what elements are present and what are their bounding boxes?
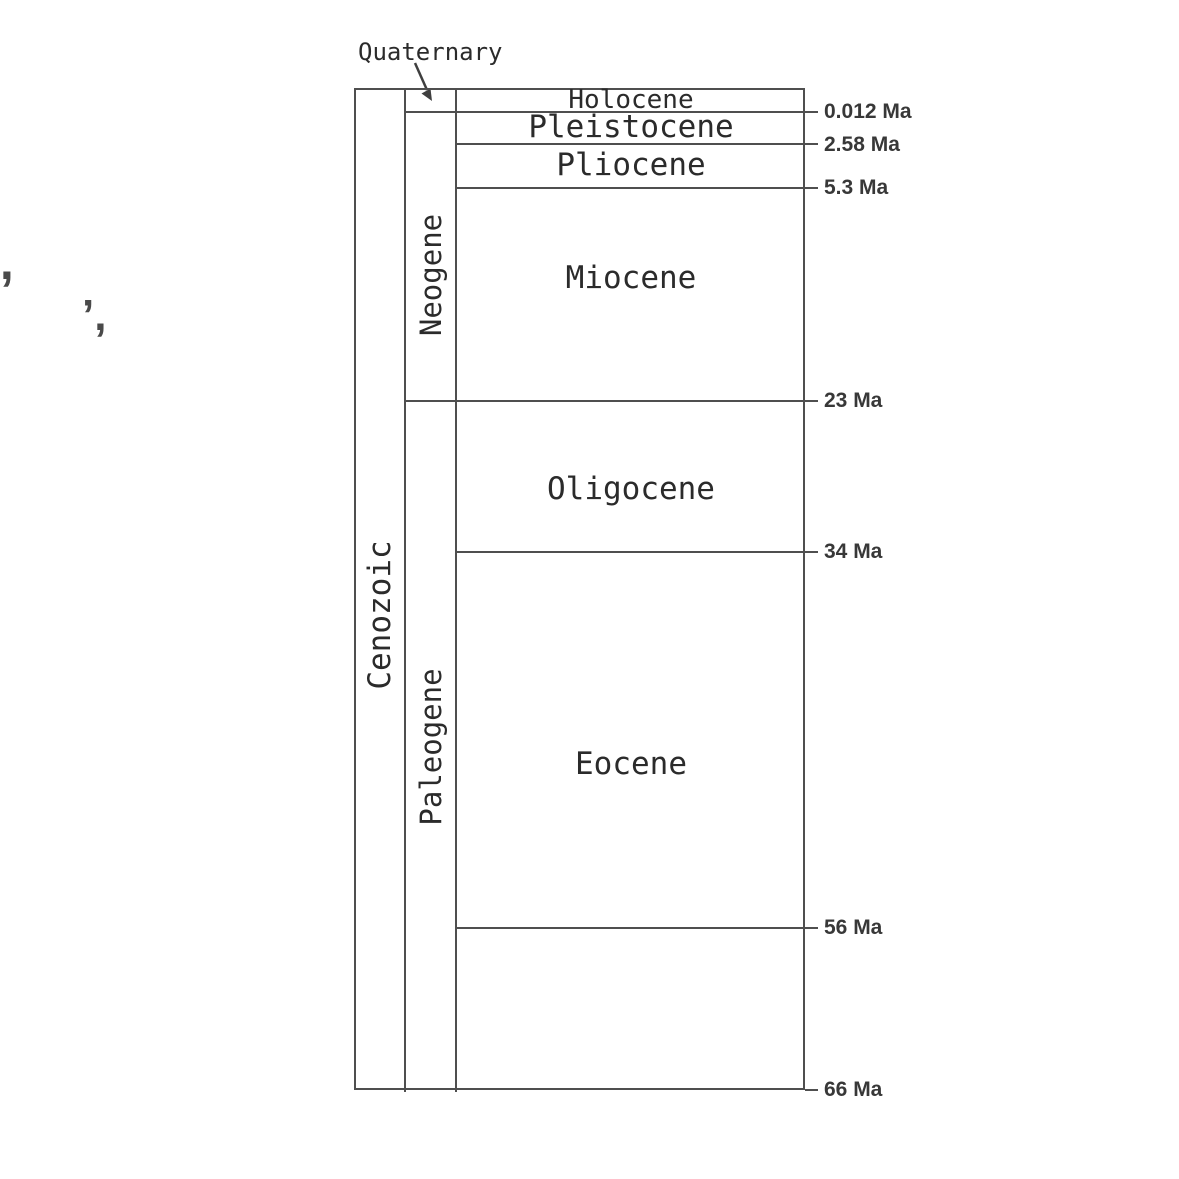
age-label-0012ma: 0.012 Ma <box>824 100 912 124</box>
age-label-53ma: 5.3 Ma <box>824 176 888 200</box>
boundary-line-34ma <box>455 551 818 553</box>
boundary-line-53ma <box>455 187 818 189</box>
age-label-258ma: 2.58 Ma <box>824 133 900 157</box>
period-label-paleogene: Paleogene <box>414 668 448 825</box>
stray-cropped-text: ’, <box>0 233 14 291</box>
age-label-56ma: 56 Ma <box>824 916 882 940</box>
age-label-23ma: 23 Ma <box>824 389 882 413</box>
epoch-label-pleistocene: Pleistocene <box>456 109 806 145</box>
geologic-timescale-diagram: ’, ’, Quaternary Cenozoic Neogene Paleog… <box>0 0 1179 1179</box>
boundary-tick-66ma <box>805 1089 818 1091</box>
boundary-line-23ma <box>404 400 818 402</box>
era-period-divider-line <box>404 88 406 1092</box>
epoch-label-eocene: Eocene <box>456 746 806 782</box>
epoch-label-miocene: Miocene <box>456 260 806 296</box>
era-label-cenozoic: Cenozoic <box>362 540 398 689</box>
epoch-label-oligocene: Oligocene <box>456 471 806 507</box>
period-label-neogene: Neogene <box>414 214 448 336</box>
age-label-34ma: 34 Ma <box>824 540 882 564</box>
stray-cropped-text: ’, <box>82 291 106 341</box>
epoch-label-pliocene: Pliocene <box>456 147 806 183</box>
age-label-66ma: 66 Ma <box>824 1078 882 1102</box>
period-epoch-divider-line <box>455 88 457 1092</box>
boundary-line-56ma <box>455 927 818 929</box>
